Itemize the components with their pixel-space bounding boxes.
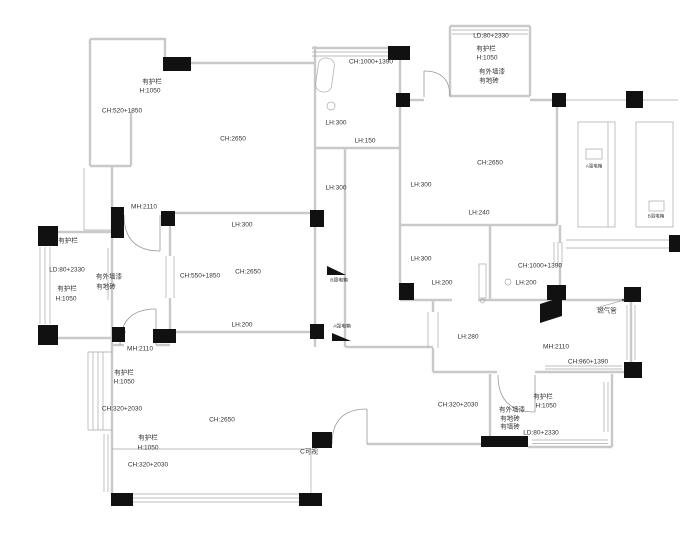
door-arc: [120, 309, 156, 345]
door-arc: [424, 71, 450, 97]
door-leaf: [479, 264, 486, 298]
bathtub: [315, 57, 336, 93]
door-arc: [498, 375, 535, 412]
electrical-symbols: [327, 266, 351, 341]
floor-plan-canvas: [0, 0, 680, 542]
power-box-a: [586, 149, 602, 159]
sink: [327, 102, 335, 110]
power-box-b: [649, 201, 664, 211]
door-arc: [124, 215, 160, 251]
gas-pipe-point: [622, 299, 625, 302]
floor-drain: [505, 279, 511, 285]
door-arc: [332, 409, 367, 444]
floor-plan: 有护栏H:1050CH:520+1850CH:2650MH:2110CH:100…: [0, 0, 680, 542]
doors: [120, 71, 535, 444]
walls: [58, 26, 631, 494]
windows: [40, 30, 678, 502]
weak-current-box-icon: [327, 266, 346, 275]
shaft-a: [578, 122, 615, 227]
strong-current-box-icon: [332, 333, 351, 341]
service-shafts: [578, 122, 673, 227]
columns: [38, 46, 680, 506]
